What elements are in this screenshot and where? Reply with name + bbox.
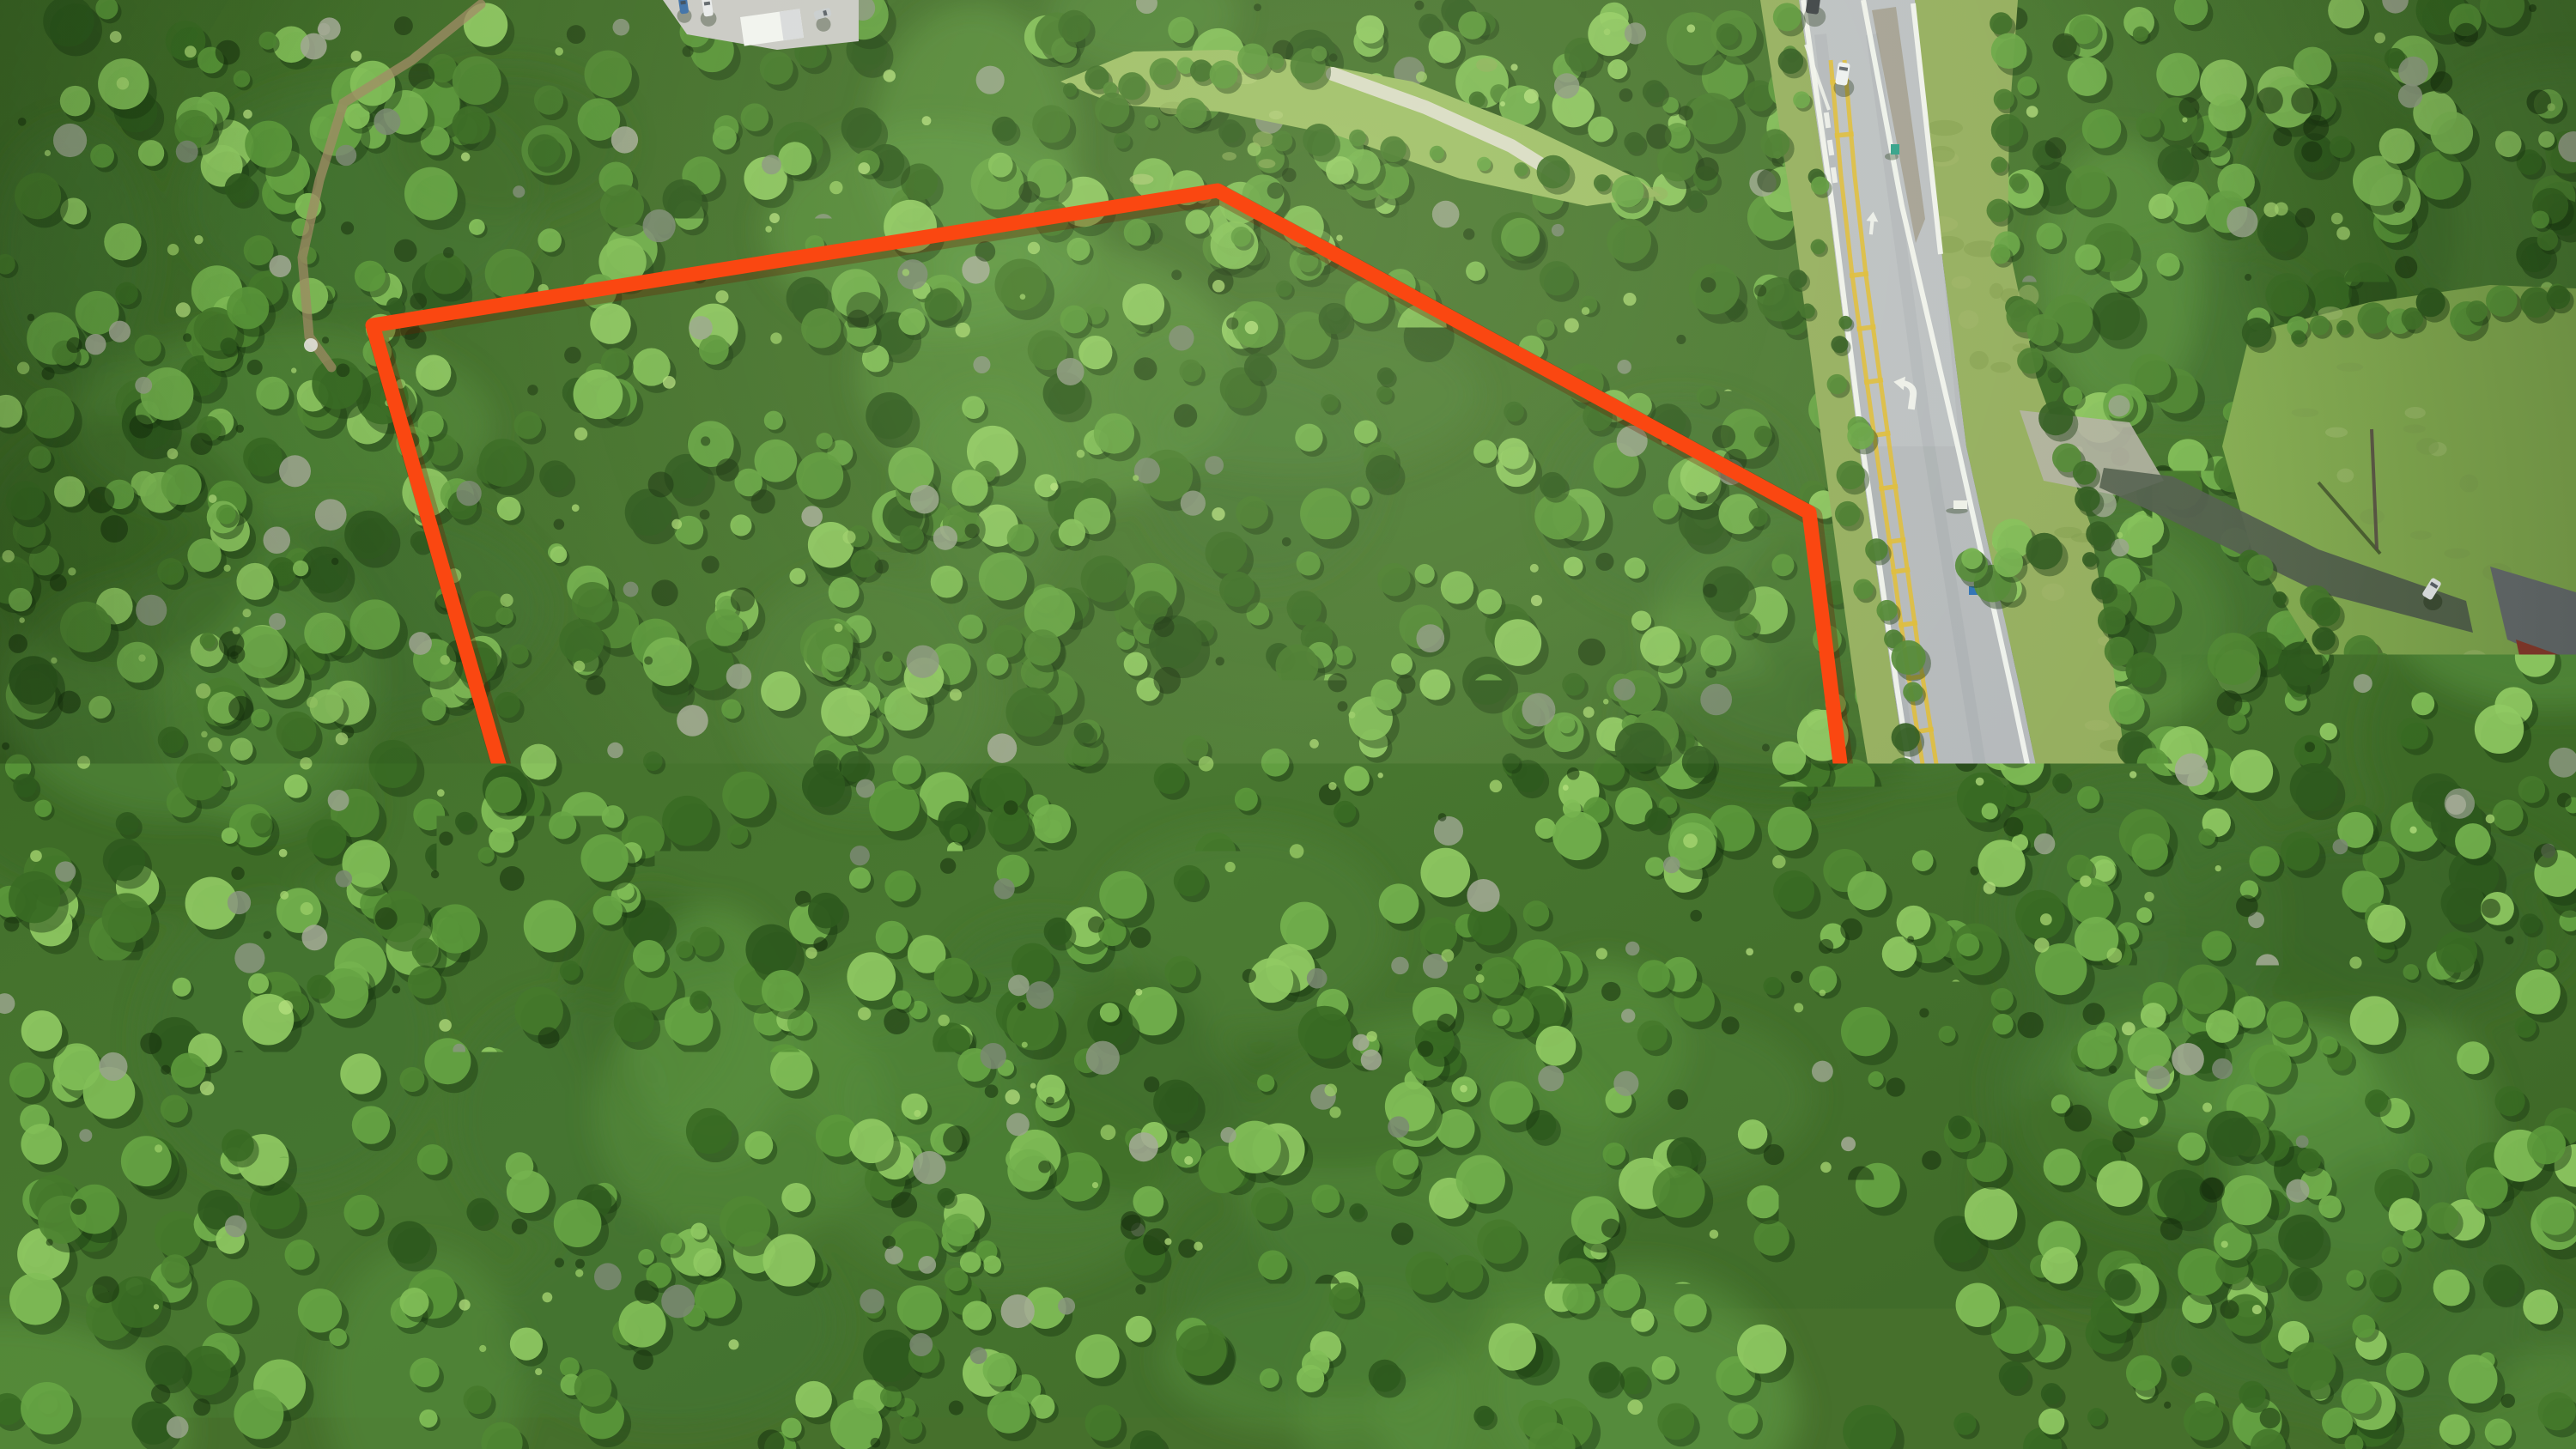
vignette-overlay (0, 0, 2576, 1449)
aerial-property-photo (0, 0, 2576, 1449)
scene-canvas (0, 0, 2576, 1449)
